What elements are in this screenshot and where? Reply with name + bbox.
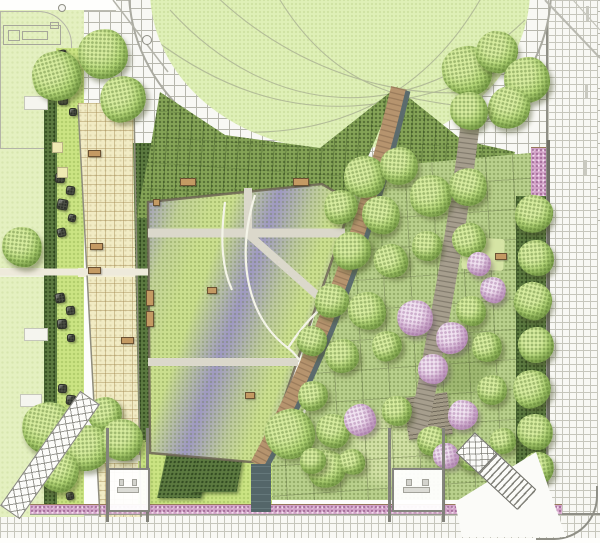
- shelter: [108, 468, 150, 512]
- bench: [495, 253, 507, 260]
- lane-marking-dash: [584, 160, 587, 175]
- boulder: [56, 198, 69, 211]
- shelter-post: [388, 428, 391, 522]
- lane-marking-dash: [585, 84, 588, 99]
- tree-canopy: [518, 327, 554, 363]
- shelter-furniture: [403, 487, 431, 493]
- boulder: [65, 185, 75, 195]
- seating-pad: [57, 167, 68, 178]
- building-annex: [50, 22, 59, 29]
- bench: [245, 392, 255, 399]
- landscape-site-plan: [0, 0, 600, 543]
- street-bottom: [0, 538, 600, 543]
- shelter-furniture: [117, 487, 139, 493]
- seating-pad: [52, 142, 63, 153]
- blossom-tree-canopy: [418, 354, 449, 385]
- utility-marker: [142, 35, 152, 45]
- shelter-furniture: [132, 479, 137, 486]
- shelter-furniture: [406, 479, 413, 486]
- boulder: [56, 227, 67, 238]
- shelter-furniture: [119, 479, 124, 486]
- boulder: [65, 305, 75, 315]
- bench: [293, 178, 309, 186]
- bench: [207, 287, 217, 294]
- paving-slab: [24, 328, 48, 341]
- bench: [153, 199, 160, 206]
- tree-canopy: [450, 92, 488, 130]
- bench: [180, 178, 196, 186]
- shelter-furniture: [422, 479, 429, 486]
- bench: [121, 337, 134, 344]
- boulder: [65, 491, 74, 500]
- building-wing: [8, 30, 20, 41]
- boulder: [69, 108, 77, 116]
- bench: [88, 150, 101, 157]
- building-core: [22, 31, 48, 40]
- shelter: [392, 468, 444, 512]
- bench: [146, 290, 154, 306]
- boulder: [54, 292, 65, 303]
- bench: [90, 243, 103, 250]
- utility-marker: [58, 4, 66, 12]
- lane-marking-dash: [586, 6, 589, 21]
- boulder: [67, 334, 75, 342]
- bench: [146, 311, 154, 327]
- bench: [88, 267, 101, 274]
- boulder: [57, 319, 68, 330]
- boulder: [57, 383, 66, 392]
- building-footprint: [3, 25, 61, 45]
